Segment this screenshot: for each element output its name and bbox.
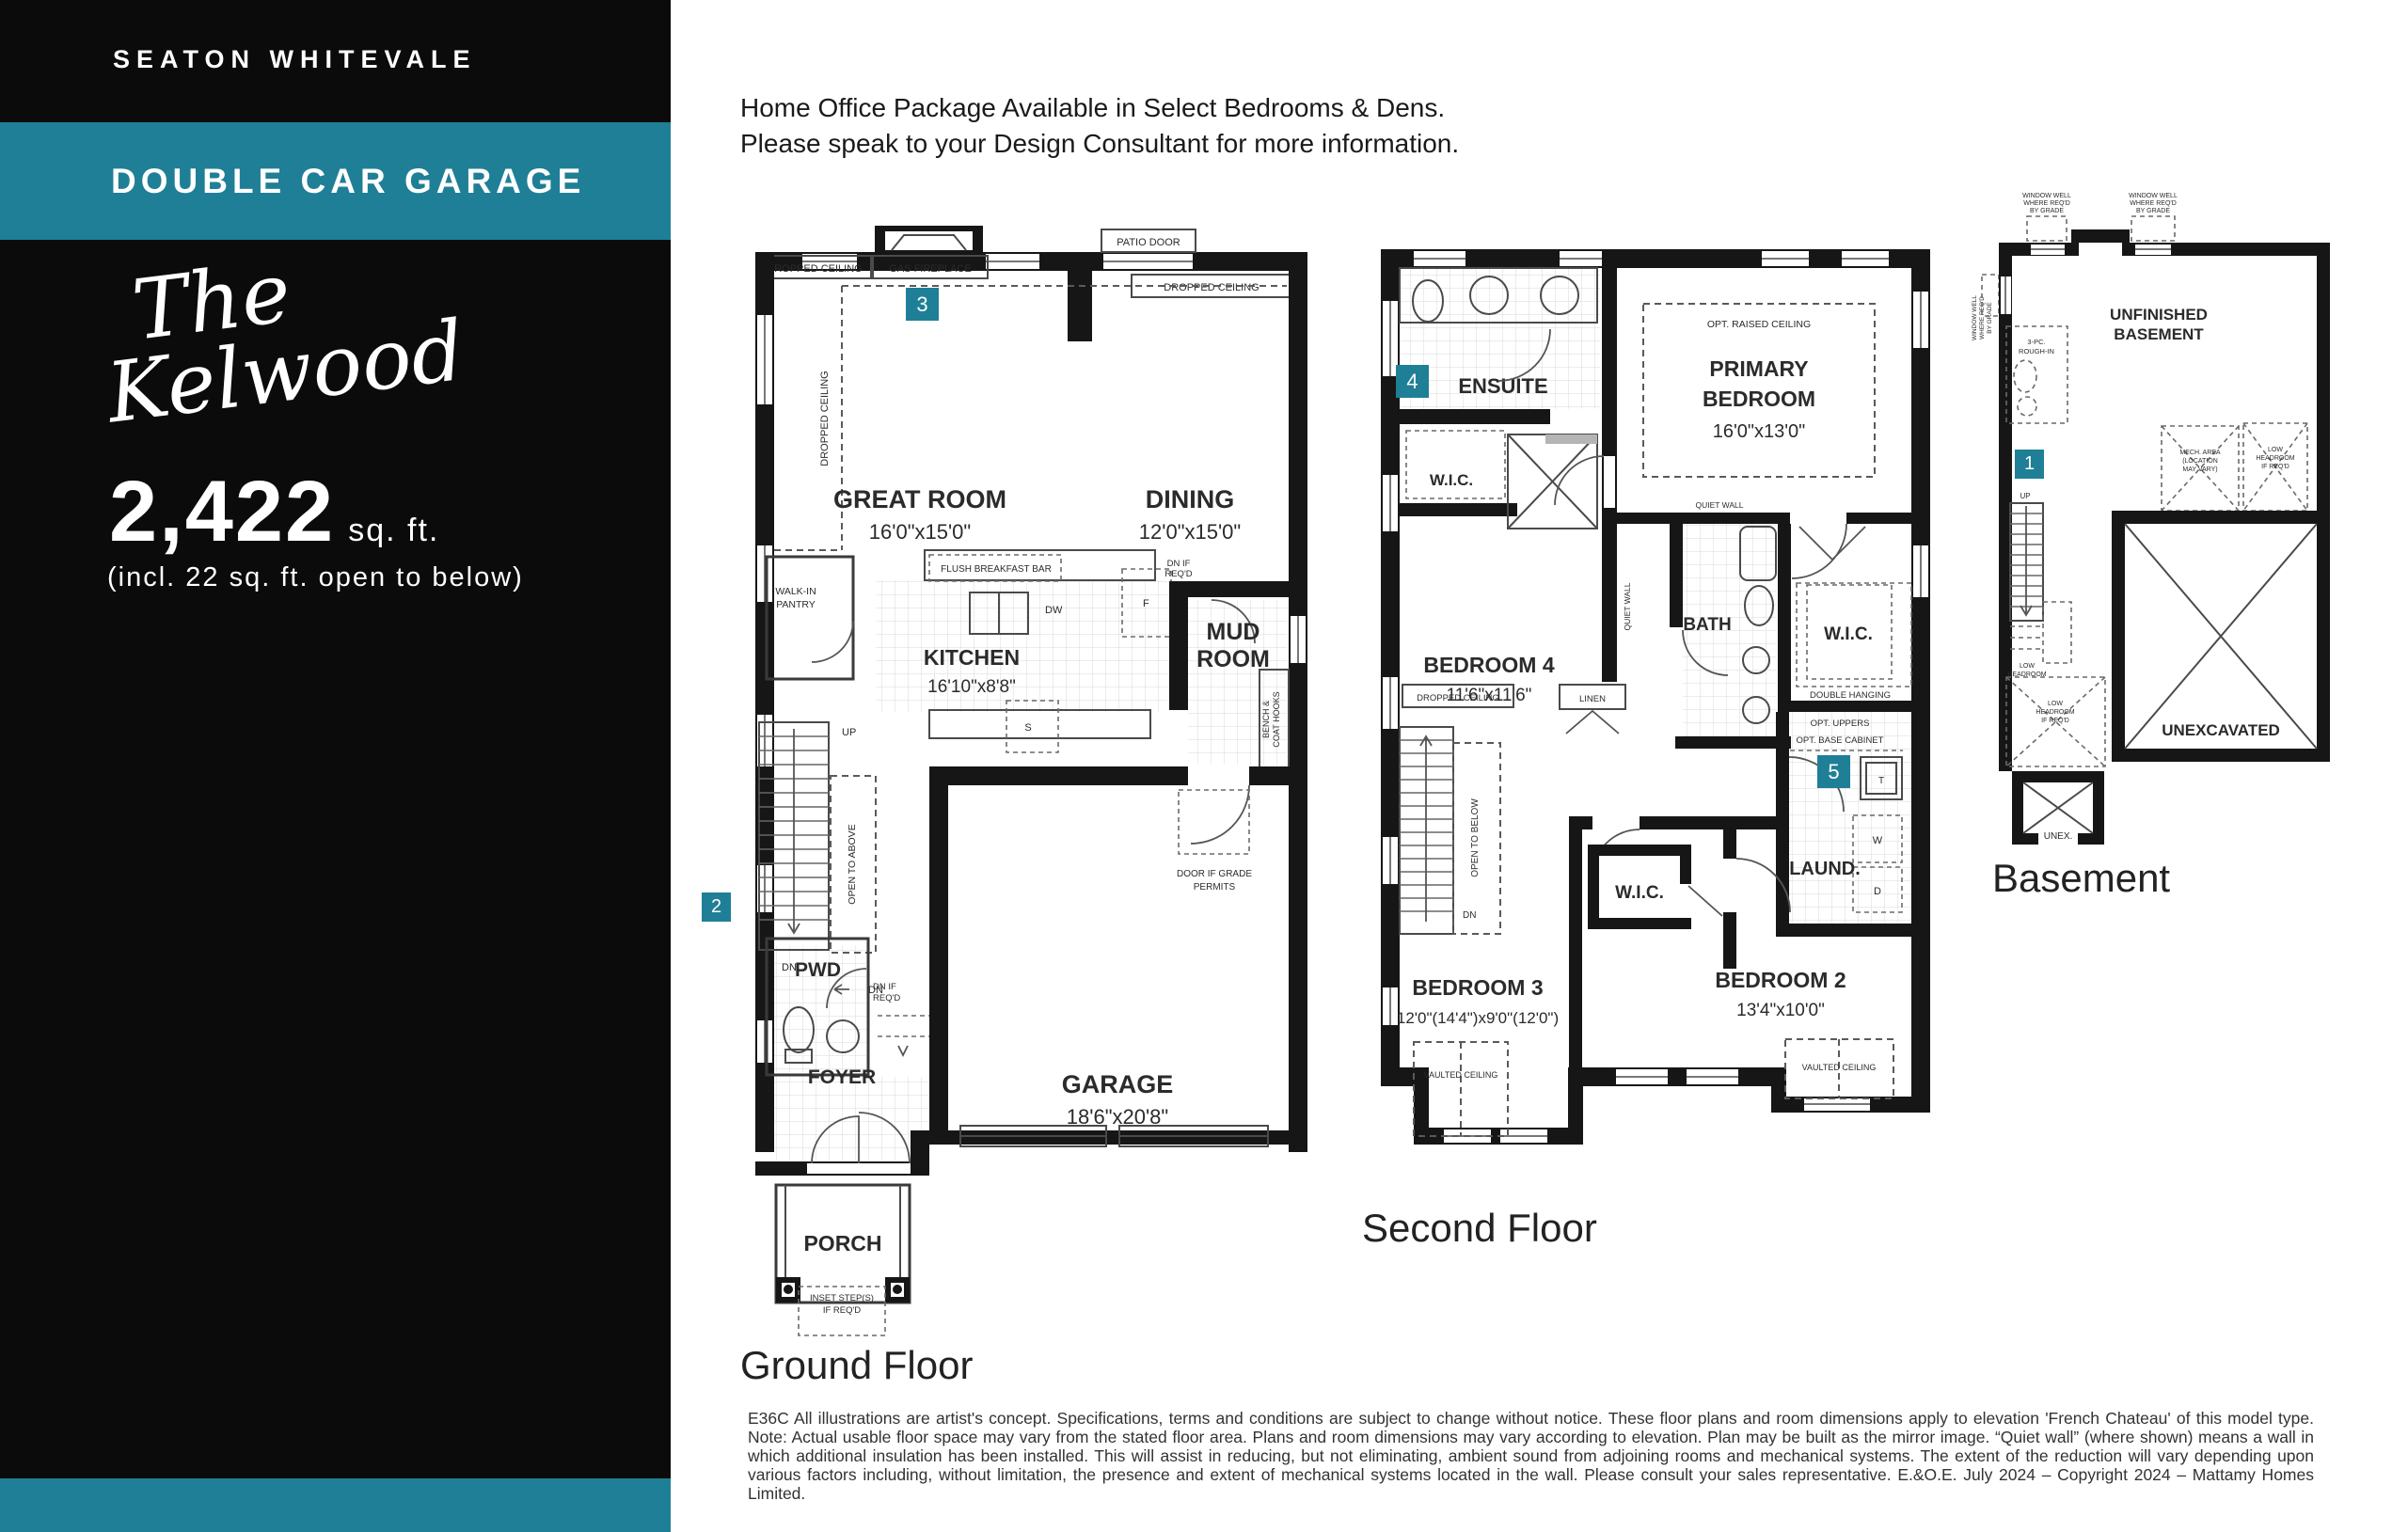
label-pwd: PWD [795,959,841,981]
ground-floor-plan: PATIO DOOR GAS FIREPLACE DROPPED CEILING… [737,226,1329,1354]
window-well [2131,216,2175,241]
kitchen-dims: 16'10"x8'8" [927,677,1016,697]
label-mud-room: ROOM [1196,646,1270,672]
window-well [2027,216,2067,241]
label-fridge: F [1143,598,1149,609]
bedroom2-dims: 13'4"x10'0" [1736,1001,1825,1020]
wall [1169,581,1289,597]
label-dn-if-reqd2-2: REQ'D [873,993,900,1003]
ww-b2: WHERE REQ'D [2130,200,2177,207]
label-opt-uppers: OPT. UPPERS [1811,719,1870,729]
front-door-opening [807,1163,911,1174]
label-wic-right: W.I.C. [1824,624,1873,644]
wall [1617,513,1790,524]
label-door-if-grade-2: PERMITS [1194,882,1236,892]
sqft-note: (incl. 22 sq. ft. open to below) [107,562,524,593]
label-unexcavated: UNEXCAVATED [2162,721,2280,739]
label-lowr-3: IF REQ'D [2261,464,2289,470]
wall [2122,229,2130,256]
label-bench-2: COAT HOOKS [1272,691,1281,747]
label-laundry: LAUND. [1789,859,1861,879]
label-dryer: D [1874,886,1881,897]
label-unfinished-2: BASEMENT [2114,325,2204,343]
primary-dims: 16'0"x13'0" [1713,421,1806,442]
dining-dims: 12'0"x15'0" [1139,520,1241,544]
label-primary-2: BEDROOM [1703,387,1815,411]
wall [1776,712,1789,935]
foyer-floor [774,1077,929,1160]
bedroom3-dims: 12'0"(14'4")x9'0"(12'0") [1397,1009,1559,1027]
grade-door-landing [1179,790,1249,854]
label-dn-if-reqd2-1: DN IF [873,982,896,992]
window-well-label-a: WINDOW WELL WHERE REQ'D BY GRADE [2022,193,2071,214]
shelf [1545,434,1597,444]
label-dn: DN [1463,910,1476,921]
low-headroom-box [2043,602,2071,663]
label-bedroom2: BEDROOM 2 [1715,968,1846,992]
label-up: UP [842,727,856,738]
community-name: SEATON WHITEVALE [113,45,477,74]
label-dn-if-reqd-2: REQ'D [1164,569,1192,579]
wall [1400,503,1517,516]
wall [1675,736,1791,749]
kitchen-floor [876,580,1167,712]
toilet-roughin [2014,360,2036,392]
label-dw: DW [1045,605,1063,616]
label-gas-fireplace: GAS FIREPLACE [889,263,971,275]
label-lowr-1: LOW [2268,447,2283,453]
wall [1568,1067,1583,1145]
square-footage: 2,422sq. ft. [109,463,439,561]
wall [1249,766,1307,785]
option-badge-2: 2 [702,892,731,922]
wall [1911,249,1930,1100]
label-mech-2: (LOCATION [2182,458,2218,465]
wall [2317,243,2330,762]
door-arc [1792,524,1846,578]
sidebar: SEATON WHITEVALE DOUBLE CAR GARAGE The K… [0,0,671,1532]
label-inset-1: INSET STEP(S) [810,1293,874,1303]
label-low2-2: HEADROOM [2036,709,2074,716]
label-primary-1: PRIMARY [1709,356,1808,381]
label-quiet-wall-v: QUIET WALL [1623,582,1632,630]
option-badge-5: 5 [1817,755,1850,788]
label-vaulted-2: VAULTED CEILING [1802,1063,1877,1072]
ww-b3: BY GRADE [2136,208,2170,214]
label-lowr-2: HEADROOM [2256,455,2294,462]
label-vaulted-1: VAULTED CEILING [1424,1070,1498,1080]
option-badge-1: 1 [2015,450,2044,479]
brochure-page: SEATON WHITEVALE DOUBLE CAR GARAGE The K… [0,0,2408,1532]
label-opt-base: OPT. BASE CABINET [1797,735,1884,746]
wall [2071,229,2130,243]
label-quiet-wall-h: QUIET WALL [1695,500,1743,510]
ww-a3: BY GRADE [2030,208,2064,214]
label-opt-raised: OPT. RAISED CEILING [1707,319,1811,330]
label-bench-1: BENCH & [1261,701,1271,738]
label-rough-1: 3-PC. [2027,338,2045,346]
door-arc [812,621,853,662]
option-badge-3: 3 [906,288,939,321]
wall [1569,816,1582,1067]
sqft-unit: sq. ft. [348,513,439,548]
label-rough-2: ROUGH-IN [2019,347,2054,355]
wall [911,1130,929,1176]
garage-type-banner: DOUBLE CAR GARAGE [0,122,671,240]
label-unfinished-1: UNFINISHED [2110,306,2208,324]
label-flush-breakfast-bar: FLUSH BREAKFAST BAR [941,564,1052,575]
label-wic-primary: W.I.C. [1430,471,1473,489]
label-double-hanging: DOUBLE HANGING [1810,690,1891,701]
second-floor-caption: Second Floor [1362,1206,1597,1251]
wall [1778,524,1791,712]
label-low-1: LOW [2020,663,2035,670]
step-arrow [898,1046,908,1055]
label-door-if-grade-1: DOOR IF GRADE [1177,869,1252,879]
stairs-down [1400,727,1453,934]
label-dropped-ceiling: DROPPED CEILING [1417,693,1499,703]
label-kitchen: KITCHEN [924,645,1020,670]
wall [929,766,948,1145]
sink-roughin [2018,397,2036,416]
wic-doors [1799,527,1865,560]
label-inset-2: IF REQ'D [823,1305,861,1316]
ww-b1: WINDOW WELL [2129,193,2178,199]
wall [1723,816,1736,859]
label-dining: DINING [1146,485,1235,513]
second-floor-plan: VAULTED CEILING VAULTED CEILING ENSUITE … [1357,235,2030,1218]
garage-door-arc [1191,785,1249,844]
label-garage: GARAGE [1062,1070,1174,1098]
label-bsmt-up: UP [2020,492,2030,500]
counter-lower [929,710,1150,738]
wall [929,766,1188,785]
label-wic-bed3: W.I.C. [1615,883,1664,903]
wall [1640,816,1776,829]
label-dropped-ceiling-left: DROPPED CEILING [767,263,862,275]
label-unex: UNEX. [2044,831,2073,842]
label-stove: S [1024,722,1031,734]
label-great-room: GREAT ROOM [833,485,1006,513]
option-badge-4: 4 [1396,365,1429,398]
linen-doors [1566,711,1619,734]
label-patio-door: PATIO DOOR [1117,237,1180,248]
sqft-value: 2,422 [109,464,335,560]
garage-type-label: DOUBLE CAR GARAGE [111,162,585,201]
label-ensuite: ENSUITE [1458,374,1547,398]
wall [1169,597,1188,710]
label-bedroom3: BEDROOM 3 [1412,975,1543,1000]
wall [2071,229,2079,256]
ww-s3: BY GRADE [1987,302,1993,334]
wall [1782,701,1916,712]
label-tank: T [1878,776,1884,786]
wall [1670,524,1683,627]
ww-a2: WHERE REQ'D [2023,200,2070,207]
basement-stairs [2010,503,2043,649]
basement-plan: WINDOW WELL WHERE REQ'D BY GRADE WINDOW … [1969,188,2373,922]
label-dropped-ceiling-right: DROPPED CEILING [1164,282,1259,293]
window-well-label-side: WINDOW WELL WHERE REQ'D BY GRADE [1972,295,1993,340]
ground-floor-caption: Ground Floor [740,1343,973,1388]
header-note: Home Office Package Available in Select … [740,90,1459,162]
wall [1068,252,1092,341]
label-low2-1: LOW [2048,701,2063,707]
label-foyer: FOYER [808,1066,876,1088]
header-line1: Home Office Package Available in Select … [740,90,1459,126]
label-pantry-2: PANTRY [776,599,816,610]
wall [1723,912,1736,969]
label-mud: MUD [1207,619,1260,645]
label-mech-3: MAY VARY) [2182,466,2217,473]
label-low2-3: IF REQ'D [2041,718,2069,724]
wall [1583,1067,1785,1086]
header-line2: Please speak to your Design Consultant f… [740,126,1459,162]
label-mech-1: MECH. AREA [2179,450,2221,456]
sidebar-footer-band [0,1478,671,1532]
label-open-to-above: OPEN TO ABOVE [847,824,858,904]
wall [1846,513,1911,524]
great-room-dims: 16'0"x15'0" [869,520,971,544]
label-washer: W [1873,835,1883,846]
basement-caption: Basement [1992,856,2170,901]
label-bedroom4: BEDROOM 4 [1423,653,1555,677]
label-linen: LINEN [1579,694,1606,704]
label-pantry-1: WALK-IN [775,586,816,597]
window-well-label-b: WINDOW WELL WHERE REQ'D BY GRADE [2129,193,2178,214]
label-dn-if-reqd-1: DN IF [1167,559,1191,569]
model-name: The Kelwood [93,230,469,436]
pantry-room [767,557,853,679]
label-porch: PORCH [803,1231,881,1256]
ww-a1: WINDOW WELL [2022,193,2071,199]
wall [1776,924,1930,937]
wall [1602,531,1617,682]
label-bath: BATH [1683,615,1731,635]
label-dropped-ceiling-side: DROPPED CEILING [819,371,831,466]
wall [1400,409,1550,424]
ww-s1: WINDOW WELL [1972,295,1978,340]
label-open-to-below: OPEN TO BELOW [1470,798,1481,877]
wall [1289,252,1307,1152]
disclaimer: E36C All illustrations are artist's conc… [748,1409,2314,1503]
